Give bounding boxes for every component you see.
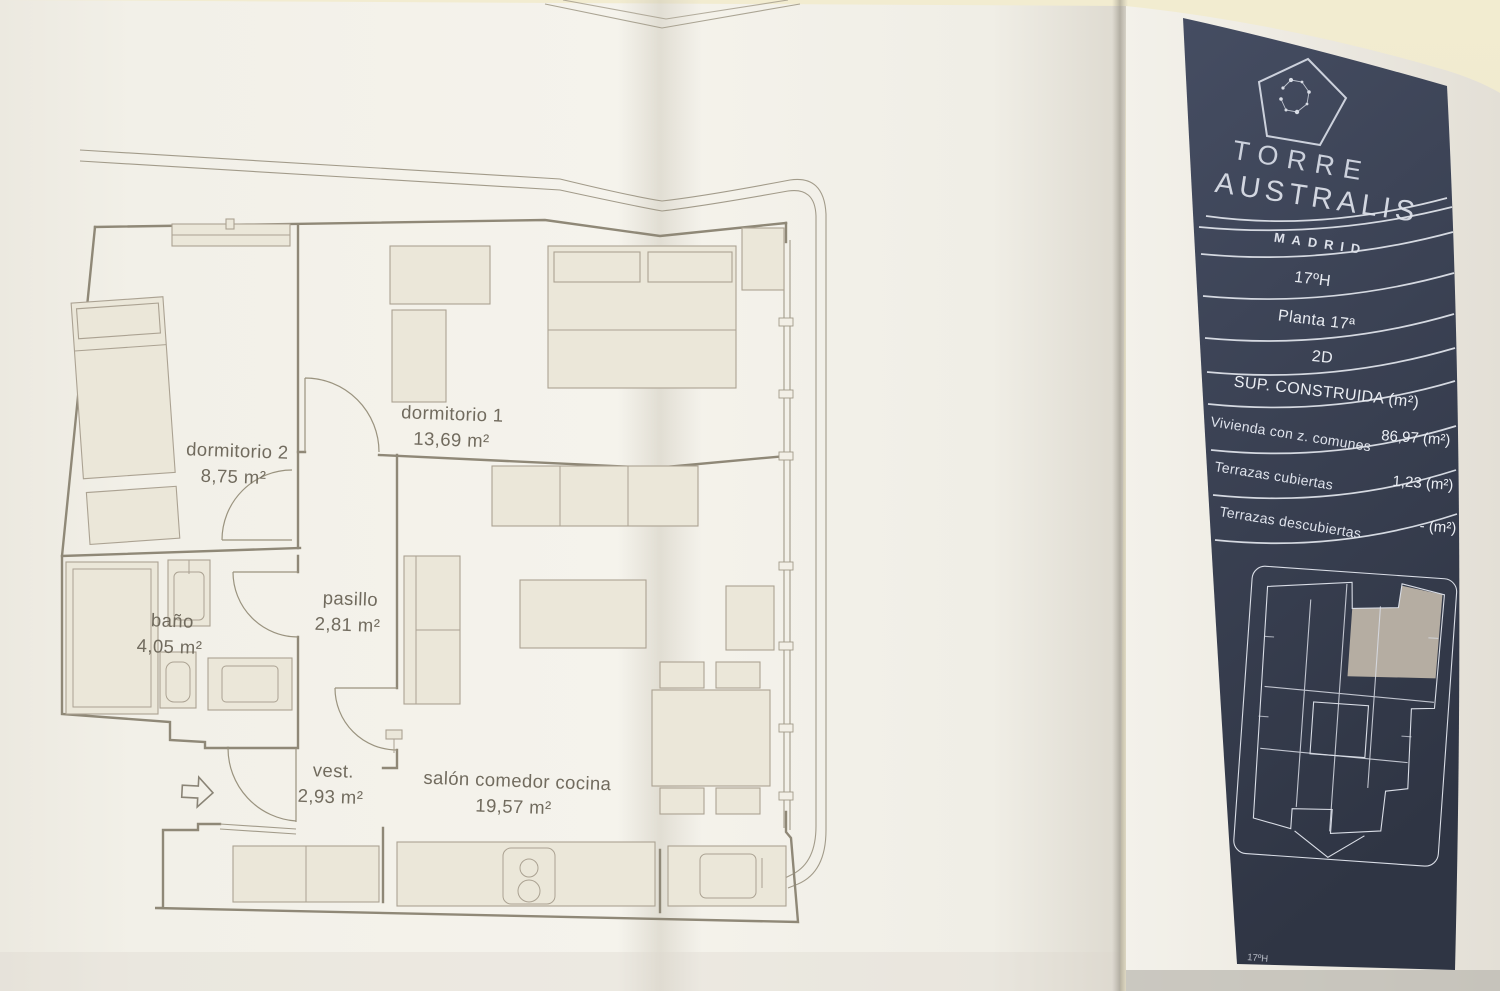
room-area: 4,05 m² (136, 635, 202, 658)
room-name: dormitorio 2 (186, 438, 289, 463)
kitchen-counters (233, 842, 786, 906)
page-bottom-shadow (1126, 970, 1500, 991)
brochure-photo: dormitorio 1 13,69 m² dormitorio 2 8,75 … (0, 0, 1500, 991)
room-area: 2,93 m² (297, 785, 363, 808)
panel-footer-code: 17ºH (1247, 952, 1269, 965)
room-name: dormitorio 1 (401, 401, 504, 426)
room-name: pasillo (322, 587, 378, 610)
room-area: 13,69 m² (413, 428, 490, 452)
unit-type: 2D (1311, 348, 1334, 367)
room-name: vest. (313, 759, 355, 781)
room-area: 2,81 m² (314, 613, 380, 636)
room-area: 8,75 m² (200, 465, 266, 488)
surface-value: - (m²) (1419, 517, 1457, 537)
room-name: baño (151, 609, 194, 631)
scene-canvas: dormitorio 1 13,69 m² dormitorio 2 8,75 … (0, 0, 1500, 991)
bedroom2-furniture (71, 297, 180, 545)
room-area: 19,57 m² (475, 795, 552, 819)
page-gap-shadow (1112, 0, 1128, 991)
sink-unit (668, 846, 786, 906)
